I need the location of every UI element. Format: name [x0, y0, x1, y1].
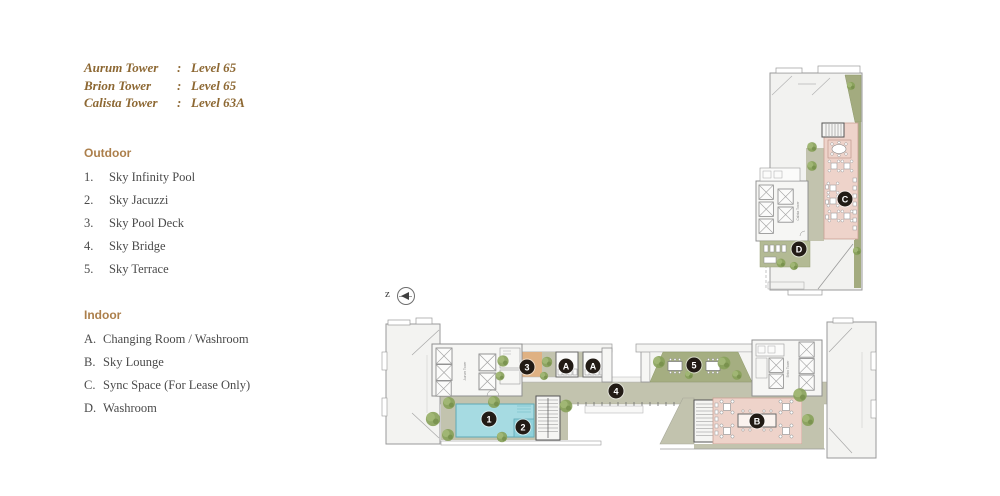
- item-key: 4.: [84, 239, 109, 262]
- aurum-core: Aurum Tower: [432, 344, 522, 396]
- separator: :: [177, 59, 191, 77]
- plan-marker-A: A: [559, 359, 574, 374]
- brion-east-wing: [827, 318, 876, 458]
- calista-tower-plan: Calista Tower: [756, 66, 862, 295]
- tower-level: Level 65: [191, 60, 236, 75]
- tower-level-row: Calista Tower:Level 63A: [84, 94, 245, 112]
- item-label: Sky Terrace: [109, 262, 169, 285]
- outdoor-heading: Outdoor: [84, 146, 195, 160]
- indoor-legend: Indoor A.Changing Room / Washroom B.Sky …: [84, 308, 250, 424]
- legend-item-washroom: D.Washroom: [84, 401, 250, 424]
- item-key: A.: [84, 332, 103, 355]
- brion-core-label: Brion Tower: [786, 360, 790, 378]
- item-label: Changing Room / Washroom: [103, 332, 249, 355]
- calista-core-label: Calista Tower: [796, 201, 800, 221]
- plan-marker-D: D: [792, 242, 807, 257]
- plan-marker-5: 5: [687, 358, 702, 373]
- item-label: Sync Space (For Lease Only): [103, 378, 250, 401]
- tower-name: Brion Tower: [84, 77, 177, 95]
- legend-item-sync-space: C.Sync Space (For Lease Only): [84, 378, 250, 401]
- tower-level: Level 65: [191, 78, 236, 93]
- aurum-core-label: Aurum Tower: [463, 361, 467, 381]
- plan-marker-C: C: [838, 192, 853, 207]
- indoor-heading: Indoor: [84, 308, 250, 322]
- floor-plan-drawing: Calista Tower: [370, 55, 885, 470]
- legend-item-sky-terrace: 5.Sky Terrace: [84, 262, 195, 285]
- sync-space-room: [822, 123, 858, 239]
- item-label: Sky Jacuzzi: [109, 193, 168, 216]
- plan-marker-3: 3: [520, 360, 535, 375]
- item-label: Sky Infinity Pool: [109, 170, 195, 193]
- separator: :: [177, 77, 191, 95]
- floor-plan-page: Aurum Tower:Level 65 Brion Tower:Level 6…: [0, 0, 1000, 496]
- item-label: Sky Pool Deck: [109, 216, 184, 239]
- aurum-brion-plan: Aurum Tower: [382, 318, 876, 458]
- plan-marker-B: B: [750, 414, 765, 429]
- calista-core: Calista Tower: [756, 168, 808, 241]
- legend-item-sky-pool-deck: 3.Sky Pool Deck: [84, 216, 195, 239]
- plan-marker-1: 1: [482, 412, 497, 427]
- tower-level: Level 63A: [191, 95, 245, 110]
- legend-item-sky-infinity-pool: 1.Sky Infinity Pool: [84, 170, 195, 193]
- tower-name: Calista Tower: [84, 94, 177, 112]
- item-key: 2.: [84, 193, 109, 216]
- legend-item-sky-lounge: B.Sky Lounge: [84, 355, 250, 378]
- legend-item-sky-bridge: 4.Sky Bridge: [84, 239, 195, 262]
- tower-level-row: Brion Tower:Level 65: [84, 77, 245, 95]
- item-label: Sky Bridge: [109, 239, 166, 262]
- tower-levels: Aurum Tower:Level 65 Brion Tower:Level 6…: [84, 59, 245, 112]
- separator: :: [177, 94, 191, 112]
- item-label: Washroom: [103, 401, 157, 424]
- item-key: B.: [84, 355, 103, 378]
- tower-level-row: Aurum Tower:Level 65: [84, 59, 245, 77]
- item-key: 1.: [84, 170, 109, 193]
- plan-marker-2: 2: [516, 420, 531, 435]
- item-key: 3.: [84, 216, 109, 239]
- item-label: Sky Lounge: [103, 355, 164, 378]
- brion-core: Brion Tower: [752, 340, 822, 396]
- tower-name: Aurum Tower: [84, 59, 177, 77]
- item-key: 5.: [84, 262, 109, 285]
- legend-item-sky-jacuzzi: 2.Sky Jacuzzi: [84, 193, 195, 216]
- sky-lounge-zone: [660, 398, 825, 449]
- plan-marker-4: 4: [609, 384, 624, 399]
- item-key: C.: [84, 378, 103, 401]
- legend-item-changing-room: A.Changing Room / Washroom: [84, 332, 250, 355]
- stair-block-left: [536, 396, 560, 440]
- outdoor-legend: Outdoor 1.Sky Infinity Pool 2.Sky Jacuzz…: [84, 146, 195, 285]
- plan-marker-A: A: [586, 359, 601, 374]
- item-key: D.: [84, 401, 103, 424]
